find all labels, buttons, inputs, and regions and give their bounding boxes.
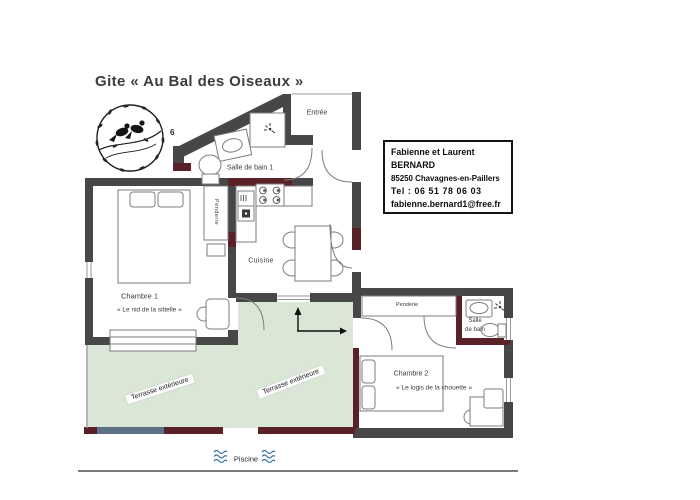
birds-logo xyxy=(95,104,164,172)
door-arc xyxy=(284,148,312,180)
nightstand xyxy=(207,244,225,256)
pillow xyxy=(158,192,183,207)
toilet-icon-1 xyxy=(199,155,221,184)
contact-email: fabienne.bernard1@free.fr xyxy=(391,198,506,211)
contact-phone: Tel : 06 51 78 06 03 xyxy=(391,185,506,198)
armchair xyxy=(206,299,229,329)
sink-icon-2 xyxy=(466,300,492,317)
label-chambre-2: Chambre 2 xyxy=(394,371,429,378)
stove-icon xyxy=(256,184,284,206)
label-chambre-1-name: « Le nid de la sittelle » xyxy=(117,307,182,314)
door-arc xyxy=(361,318,392,350)
page-title: Gite « Au Bal des Oiseaux » xyxy=(95,73,304,90)
door-arc xyxy=(424,316,456,348)
pool-waves-right xyxy=(262,451,275,463)
label-entree: Entrée xyxy=(307,110,328,117)
contact-owners: Fabienne et Laurent xyxy=(391,146,506,159)
label-cuisine: Cuisine xyxy=(248,258,273,265)
contact-address: 85250 Chavagnes-en-Paillers xyxy=(391,172,506,185)
label-salle-de-bain-1: Salle de bain 1 xyxy=(227,165,273,172)
pillow xyxy=(362,360,375,383)
corner-mark: 6 xyxy=(170,128,174,137)
door-arc xyxy=(322,150,352,182)
pillow xyxy=(130,192,155,207)
contact-card: Fabienne et Laurent BERNARD 85250 Chavag… xyxy=(383,140,513,214)
desk-monitor xyxy=(484,389,503,408)
shower-icon-2 xyxy=(494,301,505,311)
terrace-table xyxy=(110,330,196,351)
pillow xyxy=(362,386,375,409)
label-chambre-1: Chambre 1 xyxy=(121,292,158,301)
label-salle-de-bain-2-line2: de bain xyxy=(465,327,485,333)
label-penderie-1: Penderie xyxy=(213,199,219,225)
scanned-floor-plan-page: Gite « Au Bal des Oiseaux » 6 Entrée Sal… xyxy=(0,0,700,500)
pool-waves-left xyxy=(214,451,227,463)
shower-tray-1 xyxy=(250,113,285,147)
label-chambre-2-name: « Le logis de la chouette » xyxy=(396,385,472,392)
dining-table xyxy=(295,226,331,281)
label-penderie-2: Penderie xyxy=(396,302,418,308)
label-salle-de-bain-2: Salle de bain xyxy=(465,317,485,335)
label-salle-de-bain-2-line1: Salle xyxy=(468,318,481,324)
contact-surname: BERNARD xyxy=(391,159,506,172)
label-piscine: Piscine xyxy=(234,455,258,464)
